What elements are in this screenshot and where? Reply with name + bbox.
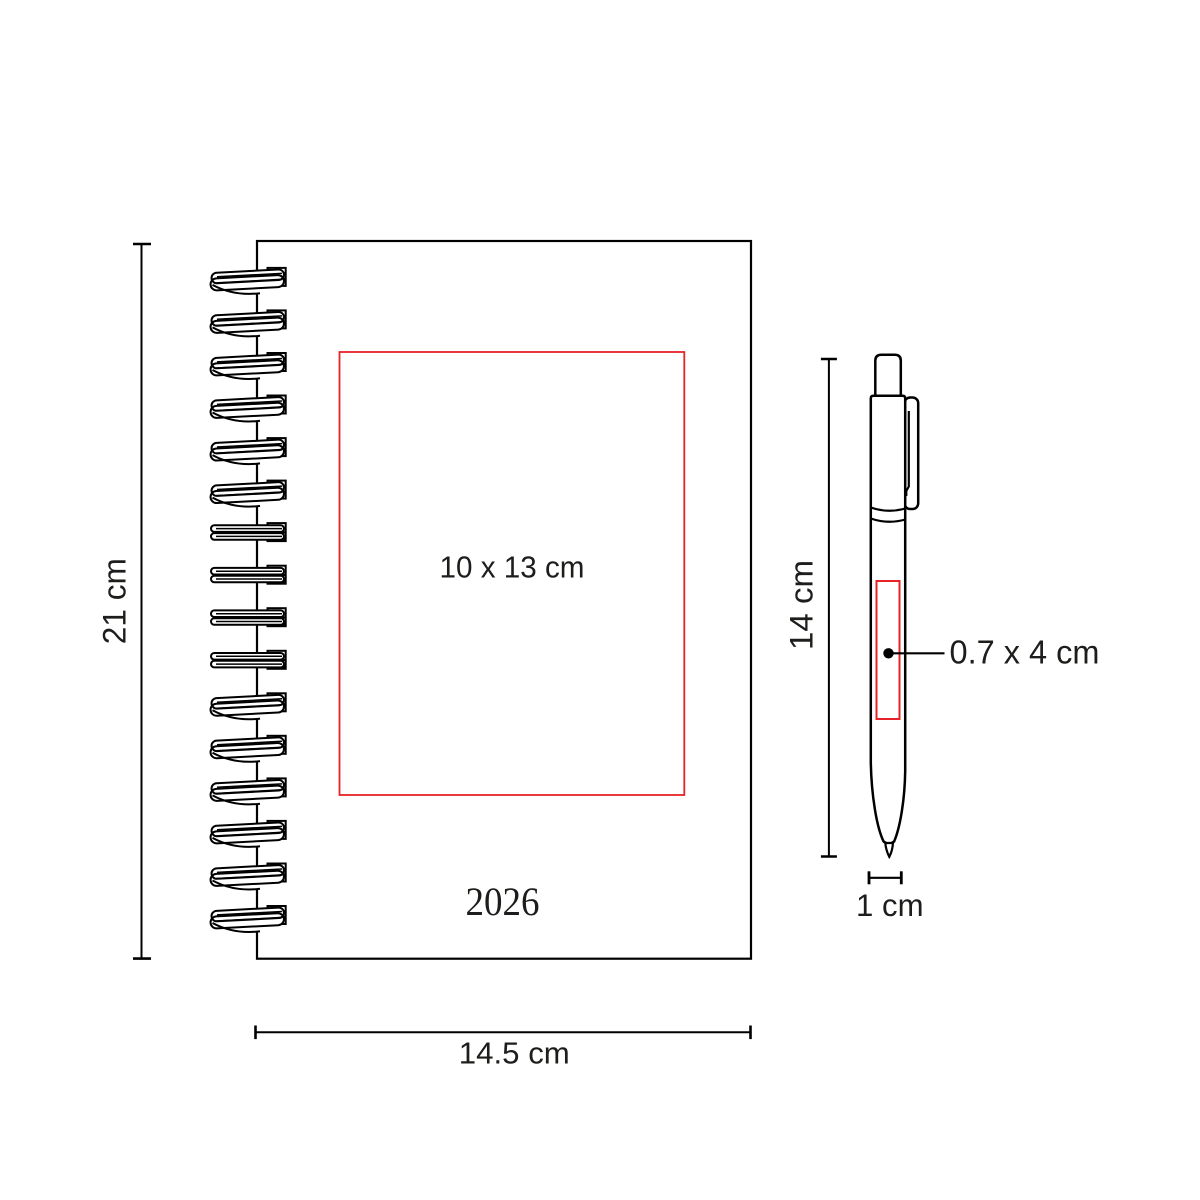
svg-text:1 cm: 1 cm — [856, 887, 924, 923]
svg-text:21 cm: 21 cm — [97, 558, 133, 644]
svg-text:14.5 cm: 14.5 cm — [459, 1035, 570, 1070]
svg-text:0.7 x 4 cm: 0.7 x 4 cm — [950, 634, 1100, 671]
svg-text:2026: 2026 — [466, 879, 540, 924]
svg-text:10 x 13 cm: 10 x 13 cm — [440, 550, 585, 585]
svg-text:14 cm: 14 cm — [784, 560, 820, 650]
